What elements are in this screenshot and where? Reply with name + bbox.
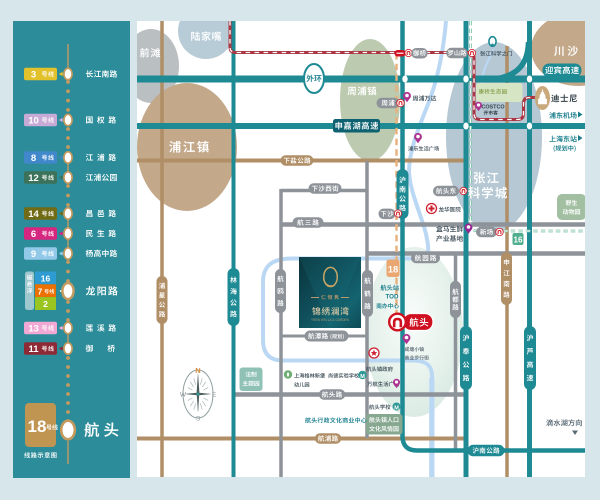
svg-text:6: 6 <box>31 229 36 240</box>
svg-text:16: 16 <box>514 235 523 244</box>
svg-text:7: 7 <box>38 286 43 296</box>
svg-text:18: 18 <box>28 417 47 436</box>
svg-text:2: 2 <box>43 299 48 309</box>
svg-text:M: M <box>360 374 365 380</box>
svg-text:YREN WELLA & GARDEN: YREN WELLA & GARDEN <box>311 318 350 322</box>
svg-text:10: 10 <box>28 115 39 126</box>
svg-text:M: M <box>394 405 399 411</box>
svg-text:16: 16 <box>41 274 51 284</box>
svg-text:14: 14 <box>28 209 39 220</box>
svg-text:3: 3 <box>31 69 36 80</box>
svg-text:W: W <box>180 392 187 399</box>
svg-text:18: 18 <box>388 265 399 276</box>
svg-text:9: 9 <box>31 249 36 260</box>
svg-text:TOD: TOD <box>386 294 399 301</box>
svg-text:8: 8 <box>31 153 36 164</box>
svg-text:11: 11 <box>28 344 39 355</box>
svg-text:13: 13 <box>28 323 39 334</box>
svg-text:COSTCO: COSTCO <box>481 105 504 111</box>
svg-text:E: E <box>212 392 217 399</box>
svg-text:N: N <box>195 366 200 375</box>
svg-text:12: 12 <box>28 173 39 184</box>
svg-text:S: S <box>196 416 201 423</box>
